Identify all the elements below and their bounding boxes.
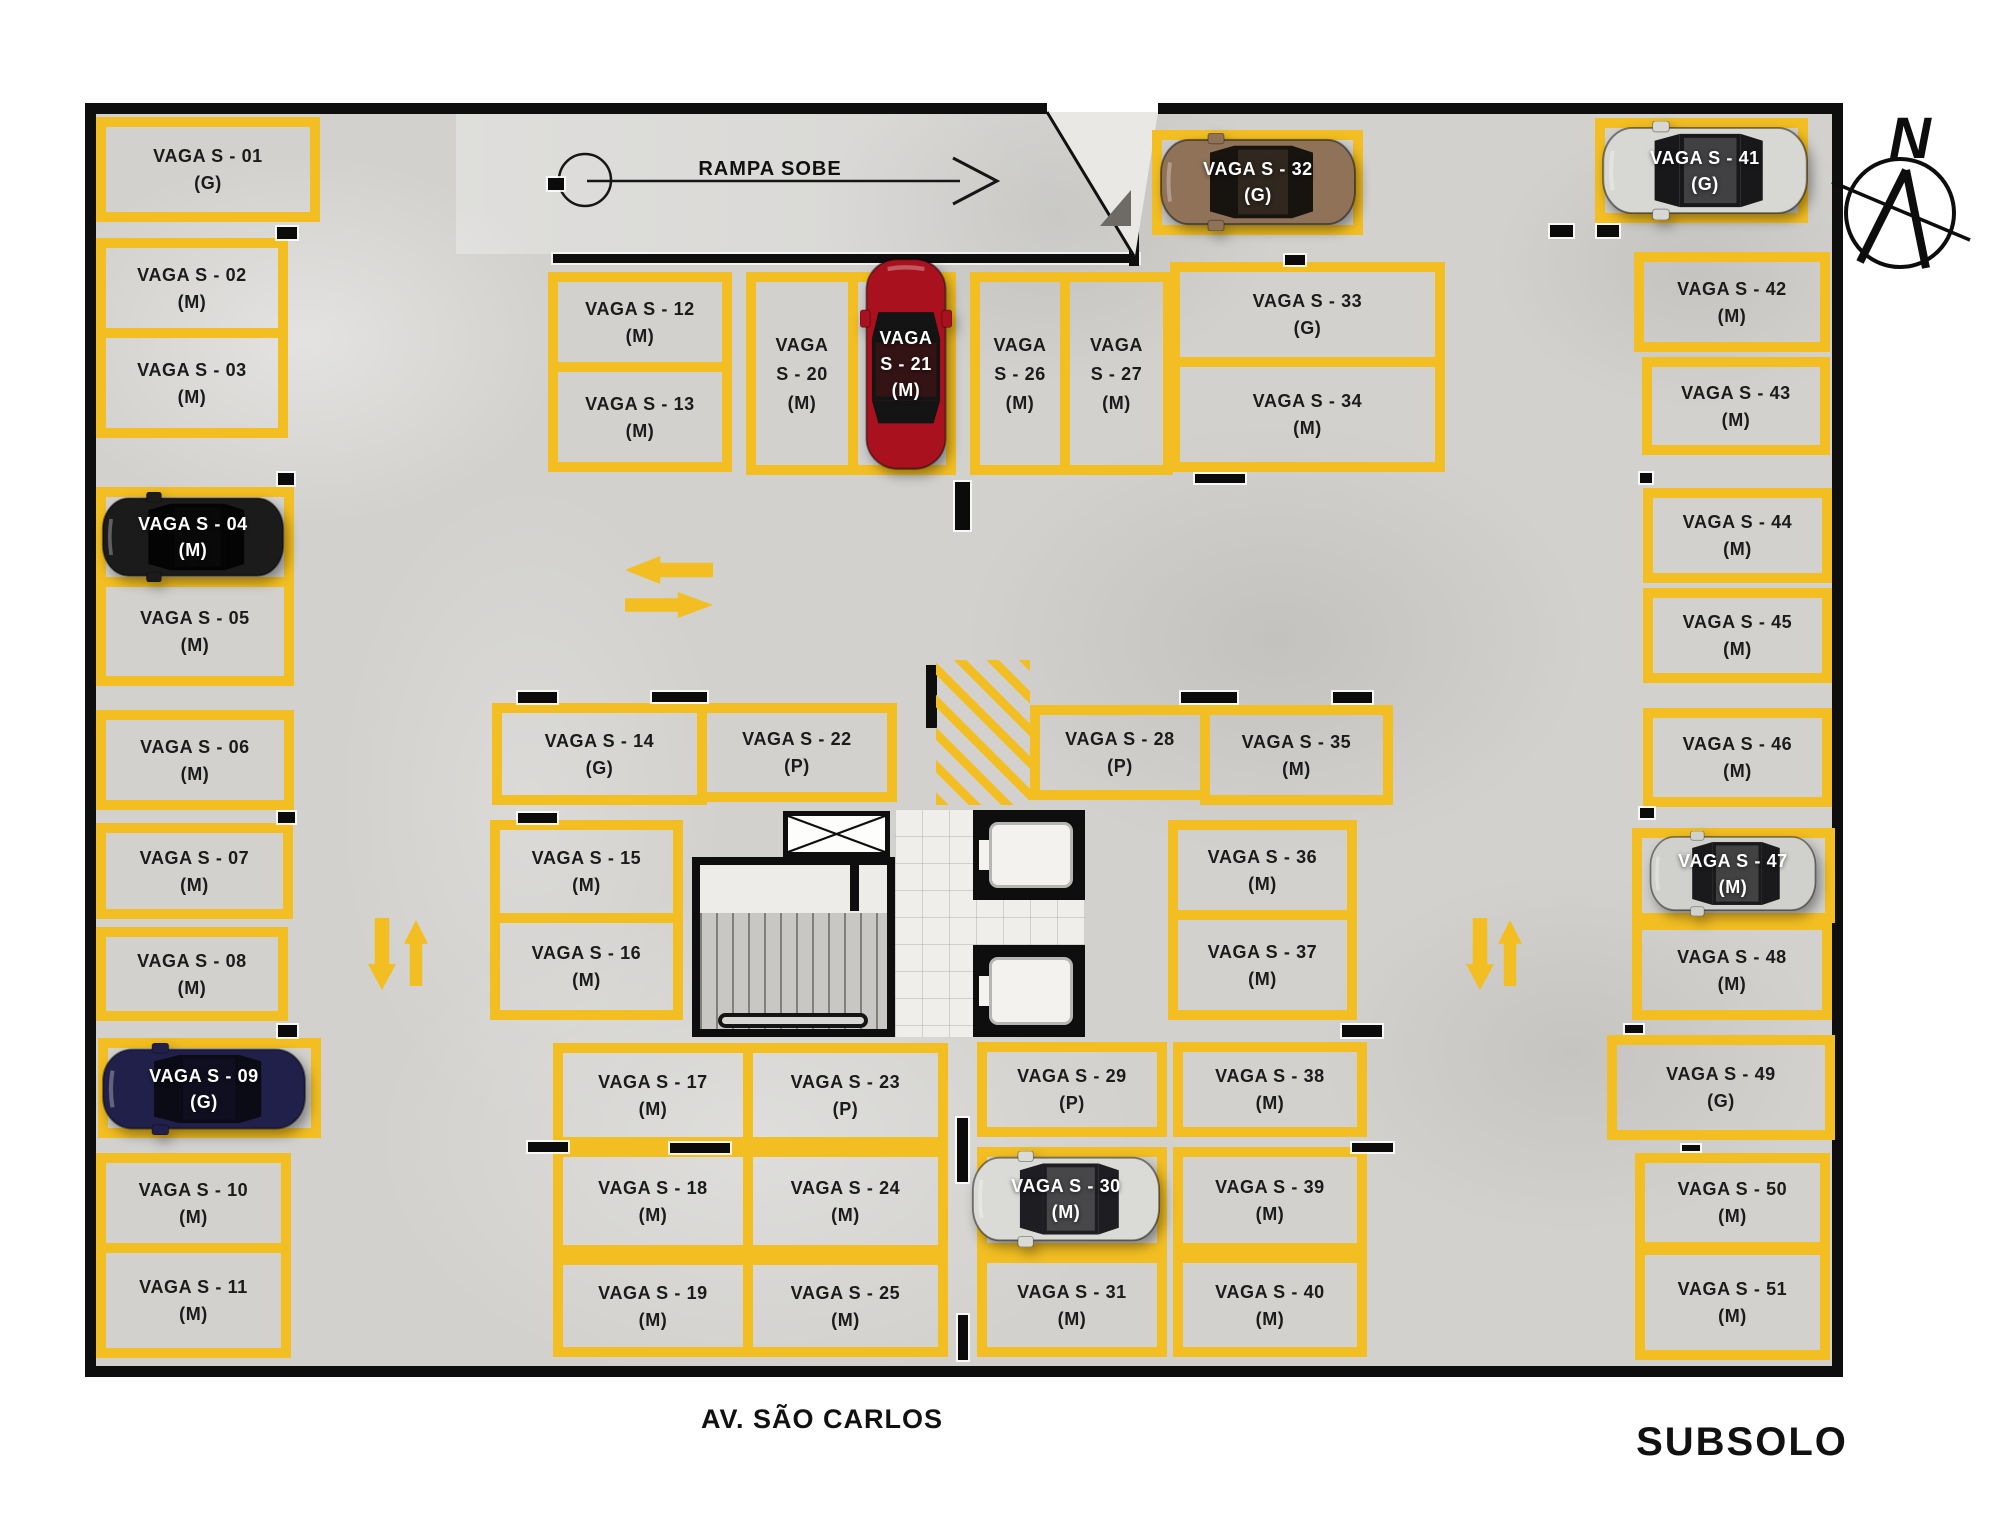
stall-vaga-s-33: VAGA S - 33(G) — [1170, 262, 1445, 367]
stall-label: VAGA S - 33 — [1253, 292, 1363, 310]
stall-label: VAGA S - 16 — [532, 944, 642, 962]
stall-label: (M) — [639, 1100, 668, 1118]
stall-label: VAGA S - 37 — [1208, 943, 1318, 961]
stall-label: VAGA S - 23 — [791, 1073, 901, 1091]
stall-label: S - 26 — [994, 365, 1046, 383]
stall-label: VAGA S - 44 — [1683, 513, 1793, 531]
car-label-line: (M) — [179, 541, 208, 559]
stall-label: VAGA S - 49 — [1666, 1065, 1776, 1083]
stall-label: (M) — [1282, 760, 1311, 778]
structural-column — [957, 1118, 968, 1182]
stall-label: VAGA S - 18 — [598, 1179, 708, 1197]
stall-vaga-s-08: VAGA S - 08(M) — [96, 927, 288, 1021]
stall-label: (M) — [1256, 1205, 1285, 1223]
stall-label: (M) — [831, 1206, 860, 1224]
structural-column — [1640, 808, 1654, 818]
stall-label: S - 27 — [1091, 365, 1143, 383]
stall-label: (M) — [639, 1311, 668, 1329]
elevator-cabin-1 — [989, 822, 1073, 888]
stall-label: VAGA S - 34 — [1253, 392, 1363, 410]
stair-wall-stub — [850, 865, 859, 911]
structural-column — [278, 812, 295, 823]
stall-vaga-s-11: VAGA S - 11(M) — [96, 1243, 291, 1358]
stall-label: (M) — [1256, 1310, 1285, 1328]
stall-label: (M) — [1248, 875, 1277, 893]
traffic-arrow-up-icon — [1498, 920, 1522, 986]
structural-column — [278, 473, 294, 485]
traffic-arrow-left-icon — [625, 556, 713, 584]
structural-column — [1342, 1025, 1382, 1037]
no-parking-hatch-zone — [936, 660, 1030, 805]
stall-vaga-s-37: VAGA S - 37(M) — [1168, 910, 1357, 1020]
stair-handrail — [718, 1013, 868, 1028]
stall-label: VAGA S - 38 — [1215, 1067, 1325, 1085]
stall-vaga-s-50: VAGA S - 50(M) — [1635, 1153, 1830, 1252]
car-label-line: (G) — [190, 1093, 218, 1111]
structural-column — [1550, 225, 1573, 237]
stall-vaga-s-35: VAGA S - 35(M) — [1200, 705, 1393, 805]
stall-label: VAGA S - 29 — [1017, 1067, 1127, 1085]
stall-label: (G) — [1707, 1092, 1735, 1110]
stall-label: VAGA S - 51 — [1678, 1280, 1788, 1298]
stall-label: (M) — [1718, 1307, 1747, 1325]
stall-vaga-s-43: VAGA S - 43(M) — [1642, 357, 1830, 455]
compass-needle-left — [1860, 170, 1906, 262]
car-stall-label-vaga-s-30: VAGA S - 30(M) — [970, 1151, 1162, 1247]
stall-vaga-s-16: VAGA S - 16(M) — [490, 913, 683, 1020]
traffic-arrow-down-icon — [1466, 918, 1494, 990]
stall-label: (M) — [181, 636, 210, 654]
structural-column — [652, 692, 707, 702]
stall-label: VAGA S - 02 — [137, 266, 247, 284]
car-label-line: (G) — [1691, 175, 1719, 193]
car-label-line: VAGA S - 09 — [149, 1067, 259, 1085]
structural-column — [1682, 1145, 1700, 1151]
car-label-line: VAGA S - 41 — [1650, 149, 1760, 167]
stall-label: (M) — [1723, 640, 1752, 658]
car-label-line: S - 21 — [880, 355, 932, 373]
car-label-line: VAGA S - 04 — [138, 515, 248, 533]
shaft-x-icon — [788, 816, 885, 852]
compass-cross-line — [1832, 182, 1970, 240]
stall-label: (M) — [180, 876, 209, 894]
structural-column — [958, 1315, 968, 1360]
stall-label: VAGA — [775, 336, 828, 354]
structural-column — [528, 1142, 568, 1152]
traffic-arrow-down-icon — [368, 918, 396, 990]
stall-label: (G) — [1294, 319, 1322, 337]
car-stall-label-vaga-s-09: VAGA S - 09(G) — [100, 1043, 308, 1135]
stall-label: (M) — [572, 971, 601, 989]
stall-label: (M) — [178, 388, 207, 406]
stall-label: (M) — [1718, 1207, 1747, 1225]
stair-treads — [700, 913, 887, 1029]
stall-vaga-s-27: VAGAS - 27(M) — [1060, 272, 1173, 475]
car-label-line: (G) — [1244, 186, 1272, 204]
wall-bottom — [85, 1366, 1843, 1377]
stall-label: VAGA S - 45 — [1683, 613, 1793, 631]
stall-label: VAGA — [993, 336, 1046, 354]
structural-column — [1285, 255, 1305, 265]
car-stall-label-vaga-s-41: VAGA S - 41(G) — [1600, 121, 1810, 220]
structural-column — [955, 482, 970, 530]
stall-label: (M) — [1102, 394, 1131, 412]
stall-vaga-s-40: VAGA S - 40(M) — [1173, 1253, 1367, 1357]
stall-label: (M) — [1256, 1094, 1285, 1112]
stall-vaga-s-01: VAGA S - 01(G) — [96, 117, 320, 222]
stall-label: VAGA S - 13 — [585, 395, 695, 413]
stall-vaga-s-39: VAGA S - 39(M) — [1173, 1147, 1367, 1253]
compass-circle — [1846, 159, 1954, 267]
stall-label: (M) — [1722, 411, 1751, 429]
street-label: AV. SÃO CARLOS — [701, 1404, 943, 1435]
stall-label: (M) — [626, 422, 655, 440]
car-label-line: VAGA S - 32 — [1203, 160, 1313, 178]
stall-vaga-s-26: VAGAS - 26(M) — [970, 272, 1070, 475]
stall-vaga-s-44: VAGA S - 44(M) — [1643, 488, 1832, 583]
structural-column — [518, 813, 557, 823]
stall-label: (M) — [1293, 419, 1322, 437]
stall-vaga-s-19: VAGA S - 19(M) — [553, 1255, 753, 1357]
stall-label: VAGA S - 48 — [1677, 948, 1787, 966]
stall-vaga-s-36: VAGA S - 36(M) — [1168, 820, 1357, 920]
car-label-line: VAGA S - 47 — [1678, 852, 1788, 870]
structural-column — [1597, 225, 1619, 237]
stairwell — [692, 857, 895, 1037]
stall-label: VAGA S - 11 — [139, 1278, 248, 1296]
traffic-arrow-right-icon — [625, 592, 713, 618]
stall-vaga-s-20: VAGAS - 20(M) — [746, 272, 858, 475]
car-stall-label-vaga-s-21: VAGAS - 21(M) — [860, 256, 952, 472]
stall-label: (M) — [572, 876, 601, 894]
stall-label: (M) — [178, 979, 207, 997]
stall-vaga-s-25: VAGA S - 25(M) — [743, 1255, 948, 1357]
stall-label: (M) — [1718, 975, 1747, 993]
stall-label: (M) — [1718, 307, 1747, 325]
stall-label: VAGA S - 17 — [598, 1073, 708, 1091]
stall-vaga-s-05: VAGA S - 05(M) — [96, 577, 294, 686]
car-label-line: (M) — [892, 381, 921, 399]
stall-vaga-s-28: VAGA S - 28(P) — [1030, 705, 1210, 800]
stall-label: (M) — [179, 1305, 208, 1323]
stall-label: VAGA — [1090, 336, 1143, 354]
stall-label: (M) — [788, 394, 817, 412]
car-label-line: (M) — [1719, 878, 1748, 896]
stall-label: VAGA S - 19 — [598, 1284, 708, 1302]
stall-label: (M) — [178, 293, 207, 311]
parking-floor-plan: N VAGA S - 01(G)VAGA S - 02(M)VAGA S - 0… — [0, 0, 1998, 1519]
traffic-arrow-up-icon — [404, 920, 428, 986]
ramp-wall-lower — [553, 254, 1139, 263]
stall-vaga-s-24: VAGA S - 24(M) — [743, 1147, 948, 1255]
stall-label: (P) — [1107, 757, 1133, 775]
stall-vaga-s-02: VAGA S - 02(M) — [96, 238, 288, 338]
stall-vaga-s-42: VAGA S - 42(M) — [1634, 252, 1830, 352]
stall-label: (M) — [639, 1206, 668, 1224]
stall-label: VAGA S - 28 — [1065, 730, 1175, 748]
stall-label: VAGA S - 40 — [1215, 1283, 1325, 1301]
stall-label: VAGA S - 36 — [1208, 848, 1318, 866]
stall-label: VAGA S - 10 — [139, 1181, 249, 1199]
stall-label: VAGA S - 22 — [742, 730, 852, 748]
elevator-door-1 — [979, 840, 989, 870]
stall-label: VAGA S - 24 — [791, 1179, 901, 1197]
stall-label: VAGA S - 05 — [140, 609, 250, 627]
stall-vaga-s-34: VAGA S - 34(M) — [1170, 357, 1445, 472]
car-stall-label-vaga-s-04: VAGA S - 04(M) — [100, 492, 286, 582]
stall-vaga-s-38: VAGA S - 38(M) — [1173, 1042, 1367, 1137]
stall-label: S - 20 — [776, 365, 828, 383]
elevator-shaft-1 — [973, 810, 1085, 900]
stall-vaga-s-14: VAGA S - 14(G) — [492, 703, 707, 805]
stall-label: (M) — [1058, 1310, 1087, 1328]
compass-north-letter: N — [1889, 106, 1932, 171]
elevator-cabin-2 — [989, 957, 1073, 1025]
floor-title: SUBSOLO — [1636, 1420, 1848, 1465]
stall-vaga-s-03: VAGA S - 03(M) — [96, 328, 288, 438]
structural-column — [518, 692, 557, 703]
stall-label: VAGA S - 08 — [137, 952, 247, 970]
ramp-label: RAMPA SOBE — [698, 158, 841, 181]
wall-top-left-segment — [85, 103, 1047, 114]
stall-label: (G) — [586, 759, 614, 777]
stall-vaga-s-29: VAGA S - 29(P) — [977, 1042, 1167, 1137]
stall-label: VAGA S - 39 — [1215, 1178, 1325, 1196]
stall-label: (M) — [1723, 540, 1752, 558]
stall-label: (M) — [626, 327, 655, 345]
stall-vaga-s-17: VAGA S - 17(M) — [553, 1043, 753, 1147]
stall-label: VAGA S - 31 — [1017, 1283, 1127, 1301]
structural-column — [1625, 1025, 1643, 1033]
stall-label: VAGA S - 25 — [791, 1284, 901, 1302]
stall-vaga-s-31: VAGA S - 31(M) — [977, 1253, 1167, 1357]
stall-label: VAGA S - 07 — [140, 849, 250, 867]
structural-column — [277, 227, 297, 239]
stall-label: VAGA S - 46 — [1683, 735, 1793, 753]
stall-label: (P) — [1059, 1094, 1085, 1112]
stall-label: VAGA S - 06 — [140, 738, 250, 756]
stall-vaga-s-22: VAGA S - 22(P) — [697, 703, 897, 802]
stall-label: VAGA S - 01 — [153, 147, 263, 165]
structural-column — [278, 1025, 297, 1037]
stall-label: VAGA S - 43 — [1681, 384, 1791, 402]
stall-label: VAGA S - 50 — [1678, 1180, 1788, 1198]
stall-label: VAGA S - 03 — [137, 361, 247, 379]
stall-vaga-s-07: VAGA S - 07(M) — [96, 823, 293, 919]
stall-label: (M) — [1006, 394, 1035, 412]
car-stall-label-vaga-s-32: VAGA S - 32(G) — [1158, 133, 1358, 231]
car-label-line: VAGA S - 30 — [1011, 1177, 1121, 1195]
compass-rose: N — [1818, 90, 1988, 330]
stall-vaga-s-45: VAGA S - 45(M) — [1643, 588, 1832, 683]
stall-label: VAGA S - 14 — [545, 732, 655, 750]
structural-column — [1195, 474, 1245, 483]
stall-label: VAGA S - 15 — [532, 849, 642, 867]
stall-label: VAGA S - 12 — [585, 300, 695, 318]
ramp-wall-vertical — [1129, 182, 1139, 266]
car-label-line: (M) — [1052, 1203, 1081, 1221]
stall-vaga-s-10: VAGA S - 10(M) — [96, 1153, 291, 1253]
stall-label: VAGA S - 42 — [1677, 280, 1787, 298]
stall-label: VAGA S - 35 — [1242, 733, 1352, 751]
structural-column — [1181, 692, 1237, 703]
stall-vaga-s-13: VAGA S - 13(M) — [548, 362, 732, 472]
stall-label: (M) — [1723, 762, 1752, 780]
stall-vaga-s-48: VAGA S - 48(M) — [1632, 920, 1832, 1020]
stall-vaga-s-18: VAGA S - 18(M) — [553, 1147, 753, 1255]
structural-column — [1333, 692, 1372, 703]
structural-column — [1640, 473, 1652, 483]
stall-label: (P) — [784, 757, 810, 775]
stall-vaga-s-49: VAGA S - 49(G) — [1607, 1035, 1835, 1140]
stall-vaga-s-12: VAGA S - 12(M) — [548, 272, 732, 372]
stall-vaga-s-15: VAGA S - 15(M) — [490, 820, 683, 923]
stall-label: (M) — [181, 765, 210, 783]
elevator-shaft-2 — [973, 945, 1085, 1037]
stall-vaga-s-51: VAGA S - 51(M) — [1635, 1245, 1830, 1360]
stall-vaga-s-23: VAGA S - 23(P) — [743, 1043, 948, 1147]
stall-vaga-s-06: VAGA S - 06(M) — [96, 710, 294, 810]
car-stall-label-vaga-s-47: VAGA S - 47(M) — [1648, 831, 1818, 916]
stall-label: (G) — [194, 174, 222, 192]
stall-label: (M) — [1248, 970, 1277, 988]
structural-column — [670, 1143, 730, 1153]
structural-column — [548, 178, 564, 190]
wall-top-right-segment — [1158, 103, 1843, 114]
structural-column — [1352, 1143, 1393, 1152]
stall-label: (M) — [179, 1208, 208, 1226]
compass-needle-right — [1906, 170, 1926, 268]
stall-label: (M) — [831, 1311, 860, 1329]
wall-right — [1832, 103, 1843, 1377]
stall-vaga-s-46: VAGA S - 46(M) — [1643, 708, 1832, 807]
stall-label: (P) — [833, 1100, 859, 1118]
shaft-x-box — [783, 811, 890, 857]
wall-left — [85, 103, 96, 1377]
elevator-door-2 — [979, 976, 989, 1006]
car-label-line: VAGA — [879, 329, 932, 347]
